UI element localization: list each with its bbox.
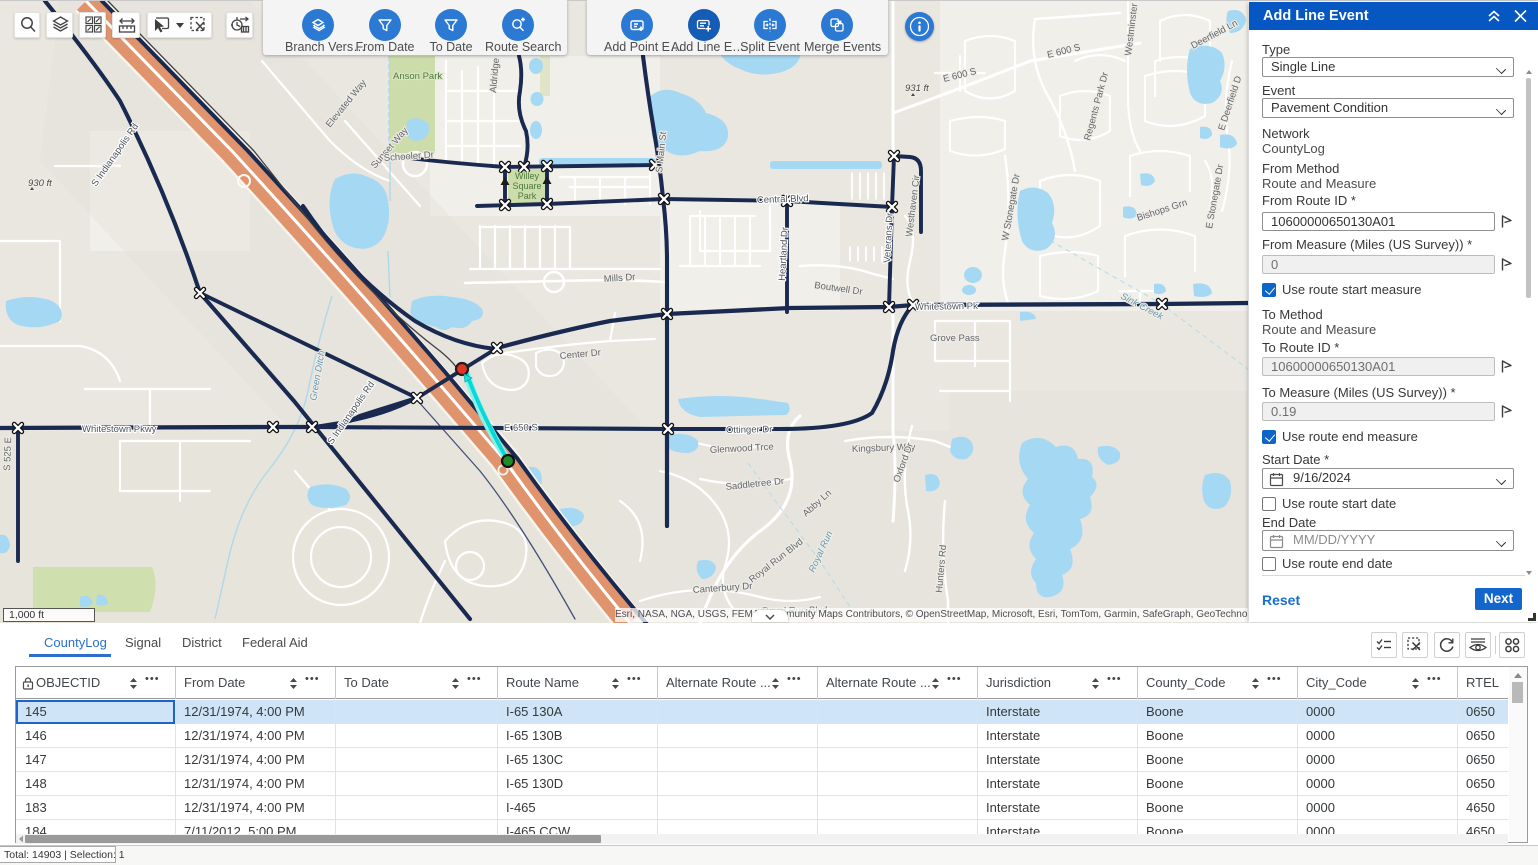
svg-text:931 ft: 931 ft bbox=[905, 83, 929, 94]
svg-text:Park: Park bbox=[518, 191, 537, 201]
svg-text:S 525 E: S 525 E bbox=[2, 437, 14, 471]
svg-text:Whitestown Pk: Whitestown Pk bbox=[915, 301, 978, 313]
svg-text:Willey: Willey bbox=[515, 171, 539, 181]
svg-text:E 650 S: E 650 S bbox=[504, 422, 538, 434]
svg-text:Ottinger Dr: Ottinger Dr bbox=[726, 424, 773, 436]
svg-text:Square: Square bbox=[512, 181, 541, 191]
svg-text:Whitestown Pkwy: Whitestown Pkwy bbox=[82, 424, 157, 435]
svg-text:Mills Dr: Mills Dr bbox=[603, 272, 635, 285]
svg-text:Anson Park: Anson Park bbox=[393, 71, 442, 82]
svg-text:Central Blvd: Central Blvd bbox=[757, 193, 809, 206]
svg-text:Grove Pass: Grove Pass bbox=[930, 333, 980, 344]
